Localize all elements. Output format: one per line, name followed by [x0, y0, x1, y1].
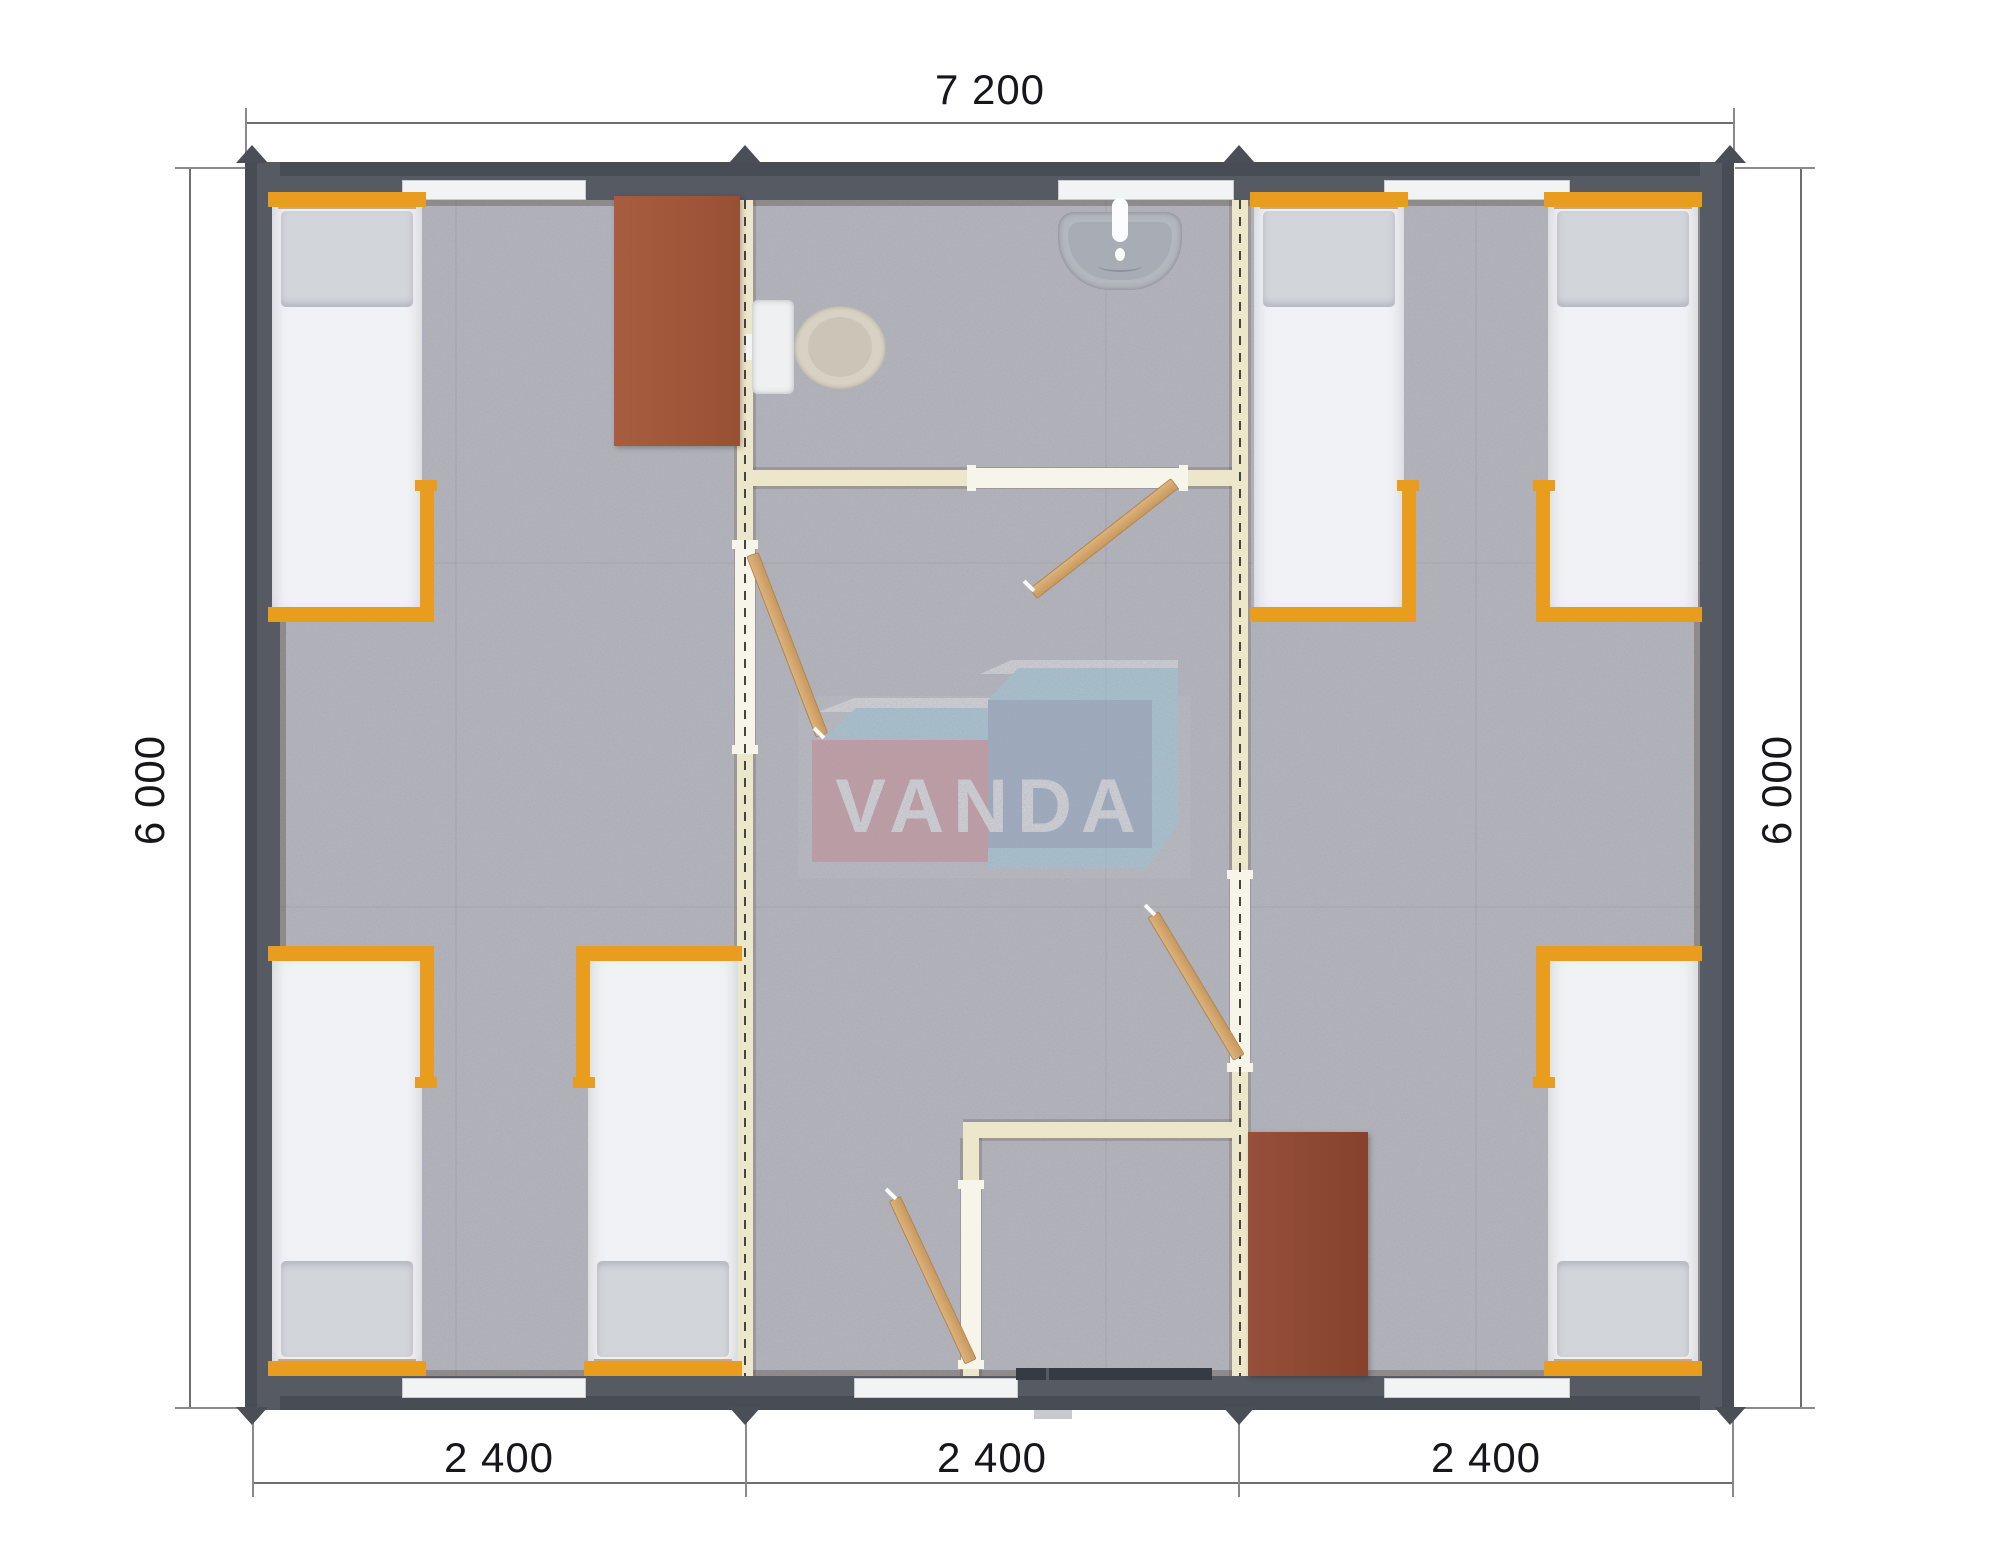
bed — [572, 946, 742, 1376]
door-opening — [735, 548, 755, 746]
bed-rail-post — [1533, 1077, 1555, 1088]
sink — [1058, 198, 1184, 294]
dimension-top-width: 7 200 — [890, 66, 1090, 114]
extension-line — [1735, 1407, 1815, 1409]
window — [1384, 1378, 1570, 1398]
bed-frame-bar — [268, 192, 426, 207]
floor-seam — [455, 200, 457, 1376]
door-jamb — [967, 465, 976, 491]
door-jamb — [958, 1180, 984, 1189]
bed-frame-bar — [1544, 946, 1702, 961]
bed — [268, 946, 438, 1376]
desk — [614, 196, 740, 446]
pillow — [1557, 211, 1689, 307]
door-opening — [975, 468, 1180, 488]
module-joint-marker — [1223, 1407, 1255, 1425]
dimension-module-2: 2 400 — [892, 1434, 1092, 1482]
module-joint-marker — [236, 1407, 268, 1425]
floor-seam — [280, 906, 1700, 908]
door-jamb — [732, 745, 758, 754]
entrance-step — [1034, 1410, 1072, 1419]
module-joint-marker — [729, 145, 761, 163]
door-jamb — [732, 540, 758, 549]
pillow — [1557, 1261, 1689, 1357]
window — [402, 1378, 586, 1398]
bed-frame-bar — [1250, 607, 1408, 622]
bed-frame-bar — [1544, 192, 1702, 207]
dimension-line-right — [1800, 168, 1802, 1408]
bed — [1532, 946, 1702, 1376]
bed — [1532, 192, 1702, 622]
extension-line — [175, 1407, 245, 1409]
floor-seam — [1475, 200, 1477, 1376]
door-jamb — [1227, 1063, 1253, 1072]
module-joint-marker — [1714, 145, 1746, 163]
pillow — [281, 1261, 413, 1357]
floor-plan-canvas: 7 200 6 000 6 000 2 400 2 400 2 400 VAND… — [0, 0, 2000, 1566]
bed-frame-bar — [1544, 607, 1702, 622]
bed — [1250, 192, 1420, 622]
entrance-door-split — [1046, 1368, 1049, 1380]
bed-frame-bar — [1250, 192, 1408, 207]
vanda-watermark: VANDA — [790, 660, 1200, 890]
dimension-line-bottom — [252, 1482, 1734, 1484]
bed-rail — [1402, 488, 1416, 622]
dimension-module-1: 2 400 — [399, 1434, 599, 1482]
bed-frame-bar — [584, 1361, 742, 1376]
bed-frame-bar — [1544, 1361, 1702, 1376]
bed-rail — [1536, 488, 1550, 622]
bed-frame-bar — [268, 946, 426, 961]
door-jamb — [1179, 465, 1188, 491]
bed-rail-post — [415, 1077, 437, 1088]
dimension-line-left — [189, 168, 191, 1408]
wall-right — [1700, 162, 1734, 1410]
bathroom-wall — [753, 470, 1232, 486]
toilet-seat — [808, 317, 872, 377]
module-joint-marker — [236, 145, 268, 163]
bed-frame-bar — [268, 607, 426, 622]
dimension-line-top — [245, 122, 1735, 124]
floor: VANDA — [280, 200, 1700, 1376]
extension-line — [1735, 167, 1815, 169]
bed-rail — [420, 946, 434, 1080]
dimension-right-height: 6 000 — [1753, 690, 1801, 890]
toilet — [750, 298, 890, 398]
bed-rail-post — [573, 1077, 595, 1088]
dimension-left-height: 6 000 — [126, 690, 174, 890]
pillow — [1263, 211, 1395, 307]
bed — [268, 192, 438, 622]
sink-overflow-line — [1098, 260, 1142, 272]
faucet-icon — [1112, 198, 1128, 242]
bed-frame-bar — [268, 1361, 426, 1376]
bed-rail — [1536, 946, 1550, 1080]
module-joint-marker — [729, 1407, 761, 1425]
module-joint-marker — [1714, 1407, 1746, 1425]
bed-rail — [420, 488, 434, 622]
bed-rail-post — [415, 480, 437, 491]
toilet-tank — [752, 300, 794, 394]
door-jamb — [1227, 870, 1253, 879]
bed-rail — [576, 946, 590, 1080]
floor-seam — [280, 562, 1700, 564]
dimension-module-3: 2 400 — [1386, 1434, 1586, 1482]
vestibule-wall-horizontal — [963, 1122, 1232, 1138]
extension-line — [175, 167, 245, 169]
bed-frame-bar — [584, 946, 742, 961]
window — [854, 1378, 1018, 1398]
logo-text: VANDA — [808, 758, 1172, 854]
window — [1058, 180, 1234, 200]
module-joint-marker — [1223, 145, 1255, 163]
partition-right — [1232, 200, 1248, 1376]
pillow — [281, 211, 413, 307]
wardrobe — [1248, 1132, 1368, 1376]
bed-rail-post — [1397, 480, 1419, 491]
bed-rail-post — [1533, 480, 1555, 491]
pillow — [597, 1261, 729, 1357]
